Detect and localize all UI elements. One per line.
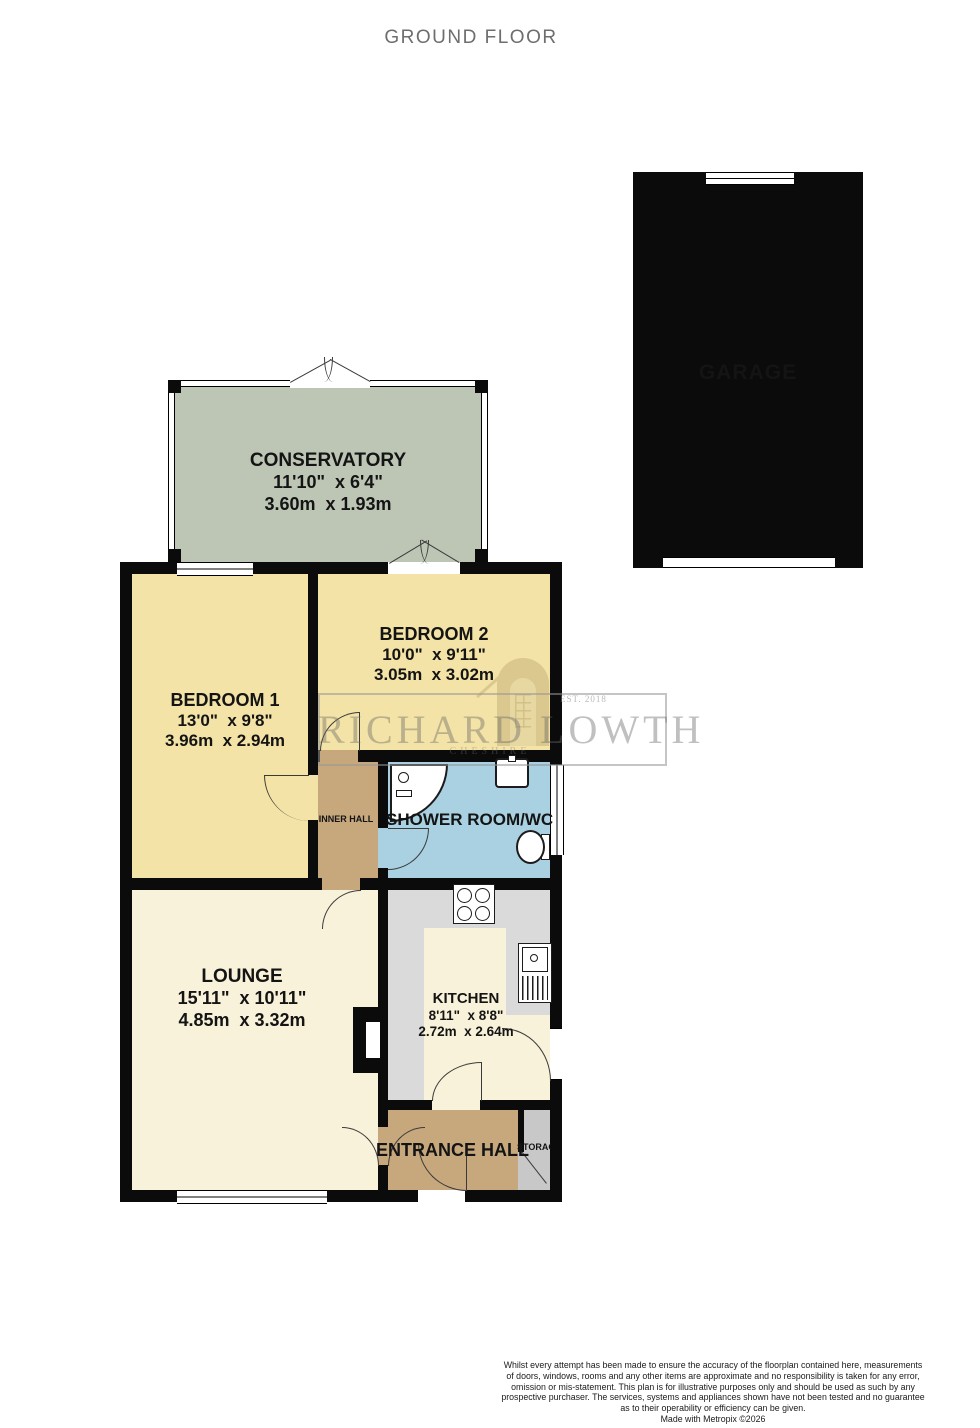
- kitchen-back-door-opening: [550, 1028, 562, 1080]
- label-bedroom1: BEDROOM 1 13'0" x 9'8" 3.96m x 2.94m: [132, 690, 318, 751]
- shower-control-icon: [396, 790, 412, 797]
- disclaimer-made-with: Made with Metropix ©2026: [440, 1414, 980, 1425]
- disclaimer-line: Whilst every attempt has been made to en…: [440, 1360, 980, 1371]
- garage-name: GARAGE: [644, 361, 852, 386]
- conservatory-post-br: [475, 549, 488, 562]
- bedroom2-name: BEDROOM 2: [318, 624, 550, 645]
- conservatory-post-bl: [168, 549, 181, 562]
- watermark-established: EST. 2018: [560, 694, 640, 704]
- entrance-hall-name: ENTRANCE HALL: [376, 1140, 520, 1161]
- kitchen-name: KITCHEN: [398, 990, 534, 1008]
- hob-burner-4: [475, 906, 490, 921]
- label-lounge: LOUNGE 15'11" x 10'11" 4.85m x 3.32m: [122, 966, 362, 1031]
- disclaimer-line: prospective purchaser. The services, sys…: [440, 1392, 980, 1403]
- hob-burner-3: [457, 906, 472, 921]
- kitchen-dims-metric: 2.72m x 2.64m: [398, 1024, 534, 1040]
- disclaimer-line: as to their operability or efficiency ca…: [440, 1403, 980, 1414]
- conservatory-post-tl: [168, 380, 181, 393]
- room-inner-hall: [318, 762, 378, 890]
- shower-room-name: SHOWER ROOM/WC: [386, 810, 550, 830]
- kitchen-dims-imperial: 8'11" x 8'8": [398, 1008, 534, 1024]
- conservatory-dims-metric: 3.60m x 1.93m: [175, 494, 481, 515]
- gap-innerhall-lounge-door: [322, 878, 360, 890]
- conservatory-glass-left: [168, 380, 175, 562]
- lounge-dims-metric: 4.85m x 3.32m: [122, 1010, 362, 1031]
- floorplan-canvas: GROUND FLOOR GARAGE CONSERVATORY 11'10" …: [0, 0, 980, 1428]
- house-wall-left: [120, 562, 132, 1202]
- hob-burner-2: [475, 888, 490, 903]
- lounge-window: [177, 1190, 327, 1204]
- conservatory-post-tr: [475, 380, 488, 393]
- watermark-region: CHESHIRE: [420, 746, 560, 757]
- shower-head-icon: [398, 772, 409, 783]
- kitchen-sink-drain-icon: [530, 954, 538, 962]
- bedroom2-dims-imperial: 10'0" x 9'11": [318, 645, 550, 665]
- label-conservatory: CONSERVATORY 11'10" x 6'4" 3.60m x 1.93m: [175, 450, 481, 515]
- garage-window: [706, 172, 794, 185]
- toilet-bowl: [516, 830, 545, 864]
- label-kitchen: KITCHEN 8'11" x 8'8" 2.72m x 2.64m: [398, 990, 534, 1040]
- label-inner-hall: INNER HALL: [310, 814, 382, 825]
- conservatory-house-door-opening: [388, 562, 460, 574]
- inner-hall-name: INNER HALL: [310, 814, 382, 825]
- lounge-dims-imperial: 15'11" x 10'11": [122, 988, 362, 1009]
- bedroom1-dims-imperial: 13'0" x 9'8": [132, 711, 318, 731]
- wall-entrance-stub-top: [378, 1110, 388, 1127]
- lounge-name: LOUNGE: [122, 966, 362, 988]
- label-garage: GARAGE: [644, 361, 852, 386]
- fireplace-recess: [366, 1022, 380, 1058]
- conservatory-glass-right: [481, 380, 488, 562]
- conservatory-dims-imperial: 11'10" x 6'4": [175, 472, 481, 493]
- label-storage: STORAGE: [517, 1142, 551, 1153]
- wall-entrance-stub-bottom: [378, 1165, 388, 1190]
- disclaimer: Whilst every attempt has been made to en…: [440, 1360, 980, 1425]
- bedroom1-dims-metric: 3.96m x 2.94m: [132, 731, 318, 751]
- storage-name: STORAGE: [517, 1142, 551, 1153]
- gap-shower-door: [378, 828, 388, 868]
- garage-door-opening: [663, 557, 835, 568]
- disclaimer-line: omission or mis-statement. This plan is …: [440, 1382, 980, 1393]
- hob-burner-1: [457, 888, 472, 903]
- label-bedroom2: BEDROOM 2 10'0" x 9'11" 3.05m x 3.02m: [318, 624, 550, 685]
- bedroom1-name: BEDROOM 1: [132, 690, 318, 711]
- bedroom2-dims-metric: 3.05m x 3.02m: [318, 665, 550, 685]
- disclaimer-line: of doors, windows, rooms and any other i…: [440, 1371, 980, 1382]
- bedroom1-window: [177, 562, 253, 576]
- front-door-opening: [418, 1190, 465, 1202]
- label-entrance-hall: ENTRANCE HALL: [376, 1140, 520, 1161]
- gap-kitchen-entrance-door: [432, 1100, 480, 1110]
- label-shower-room: SHOWER ROOM/WC: [386, 810, 550, 830]
- page-title: GROUND FLOOR: [0, 27, 942, 49]
- conservatory-name: CONSERVATORY: [175, 450, 481, 472]
